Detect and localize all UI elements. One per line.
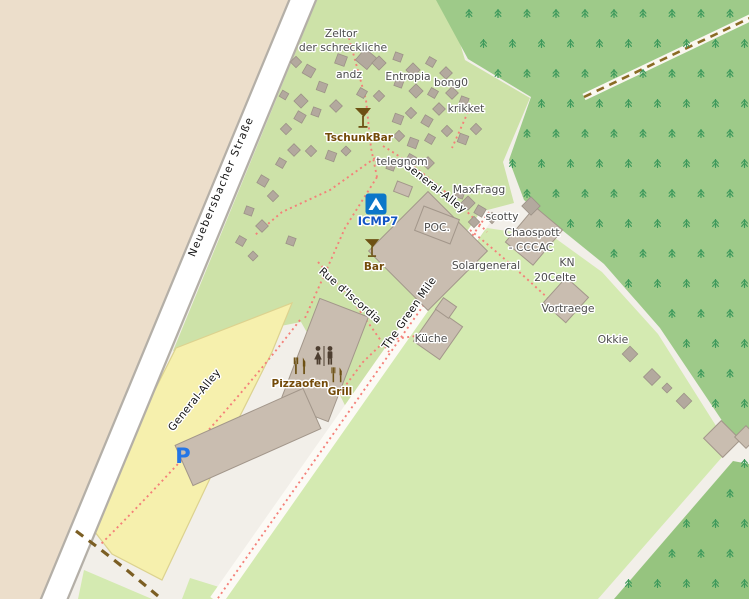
place-label-maxfragg: MaxFragg: [453, 183, 506, 196]
poi-label-pizzaofen: Pizzaofen: [272, 378, 329, 390]
campsite-icon: [366, 194, 387, 215]
openstreetmap-render[interactable]: Neuebersbacher StraßeGeneral-AlleyGenera…: [0, 0, 749, 599]
place-label-entropia: Entropia: [385, 70, 430, 83]
place-label-telegnom: telegnom: [376, 155, 427, 168]
place-label-vortraege: Vortraege: [541, 302, 594, 315]
place-label-celte: 20Celte: [534, 271, 576, 284]
poi-label-tschunkbar: TschunkBar: [325, 132, 394, 144]
place-label-kueche: Küche: [415, 332, 448, 345]
place-label-solargeneral: Solargeneral: [452, 259, 520, 272]
poi-label-grill: Grill: [328, 386, 353, 398]
place-label-scotty: scotty: [485, 210, 519, 223]
place-label-kn: KN: [559, 256, 574, 269]
parking-icon: P: [175, 444, 190, 468]
place-label-andz: andz: [336, 68, 362, 81]
poi-label-bar: Bar: [364, 261, 385, 273]
place-label-zeltor_1: Zeltor: [325, 27, 358, 40]
place-label-chaospott_2: - CCCAC: [509, 241, 554, 254]
place-label-krikket: krikket: [448, 102, 485, 115]
place-label-poc: POC.: [424, 221, 450, 234]
place-label-zeltor_2: der schreckliche: [299, 41, 388, 54]
poi-label-icmp7: ICMP7: [358, 214, 399, 228]
place-label-bong0: bong0: [434, 76, 468, 89]
map-canvas[interactable]: Neuebersbacher StraßeGeneral-AlleyGenera…: [0, 0, 749, 599]
place-label-chaospott_1: Chaospott: [504, 226, 559, 239]
place-label-okkie: Okkie: [598, 333, 629, 346]
